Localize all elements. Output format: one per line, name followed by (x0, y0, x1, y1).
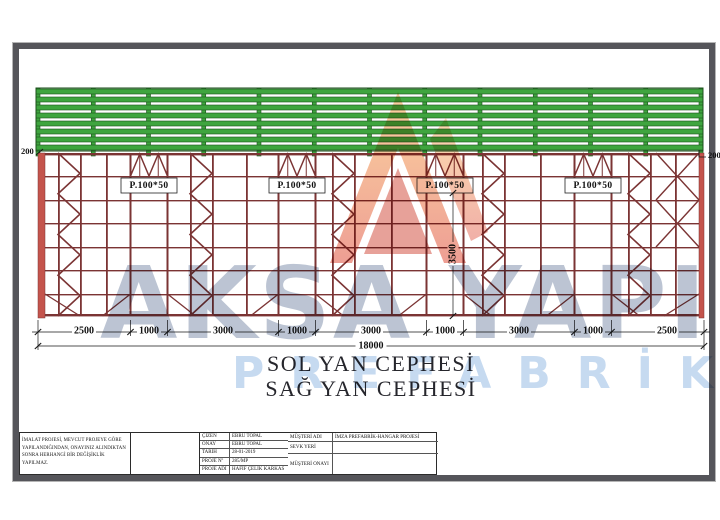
field-value: İMZA PREFABRİK-HANGAR PROJESİ (333, 433, 438, 442)
purlin-label: P.100*50 (121, 178, 177, 193)
field-label: ÇİZEN (200, 433, 230, 441)
field-value: HAFİF ÇELİK KARKAS (230, 466, 288, 474)
field-value (333, 442, 438, 454)
field-label: SEVK YERİ (288, 442, 333, 454)
project-info-table: ÇİZEN EBRU TOPAL ONAY EBRU TOPAL TARİH 2… (200, 433, 288, 474)
field-value: EBRU TOPAL (230, 433, 288, 441)
dim-label: 2500 (72, 326, 96, 337)
purlin-label: P.100*50 (565, 178, 621, 193)
purlin-label: P.100*50 (269, 178, 325, 193)
field-label: MÜŞTERİ ONAYI (288, 454, 333, 474)
field-label: ONAY (200, 441, 230, 449)
watermark-line2: PREFABRİK (232, 352, 720, 396)
note-line: SONRA HERHANGİ BİR DEĞİŞİKLİK YAPILMAZ. (22, 452, 128, 467)
field-value (333, 454, 438, 474)
stamp-cell (131, 433, 200, 474)
field-value: EBRU TOPAL (230, 441, 288, 449)
field-label: TARİH (200, 449, 230, 457)
watermark-line1: AKSA YAPI (100, 254, 708, 354)
field-value: 285/MP (230, 458, 288, 466)
customer-info-table: MÜŞTERİ ADI İMZA PREFABRİK-HANGAR PROJES… (288, 433, 438, 474)
field-label: MÜŞTERİ ADI (288, 433, 333, 442)
drawing-sheet: 2500 1000 3000 1000 3000 1000 3000 1000 … (0, 0, 720, 520)
field-label: PROJE ADI (200, 466, 230, 474)
right-offset-label: 200 (708, 150, 720, 160)
field-label: PROJE Nº (200, 458, 230, 466)
field-value: 28-01-2019 (230, 449, 288, 457)
note-line: İMALAT PROJESİ, MEVCUT PROJEYE GÖRE (22, 437, 128, 445)
purlin-label: P.100*50 (417, 178, 473, 193)
note-line: YAPILANDIĞINDAN, ONAYINIZ ALINDIKTAN (22, 445, 128, 453)
note-box: İMALAT PROJESİ, MEVCUT PROJEYE GÖRE YAPI… (20, 433, 131, 474)
title-block: İMALAT PROJESİ, MEVCUT PROJEYE GÖRE YAPI… (19, 432, 437, 475)
left-offset-label: 200 (21, 146, 34, 156)
